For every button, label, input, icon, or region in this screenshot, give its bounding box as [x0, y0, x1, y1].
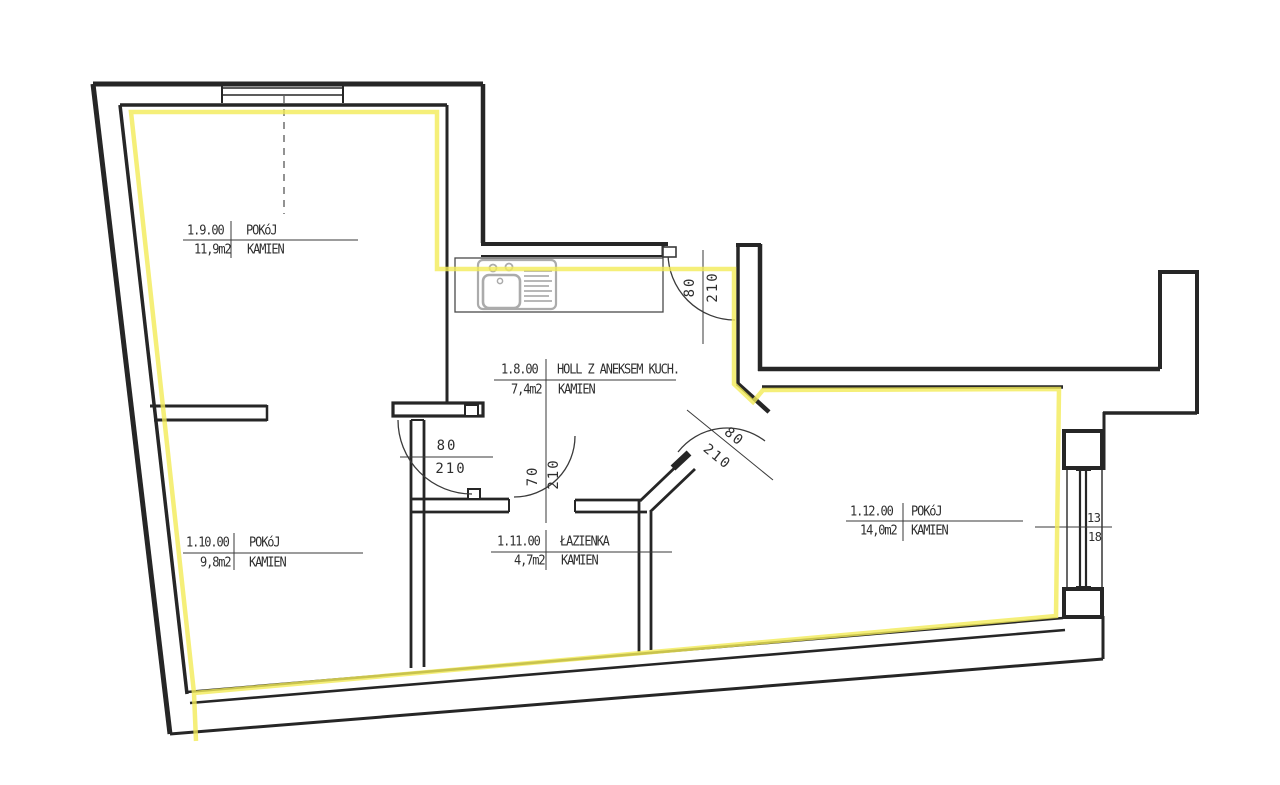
- entrance-door-arc: [668, 253, 735, 320]
- hall-area: 7,4m2: [511, 383, 541, 397]
- room-1-12-id: 1.12.00: [850, 505, 893, 519]
- room-1-12-material: KAMIEN: [911, 524, 948, 538]
- window-dim-top: 13: [1087, 512, 1100, 524]
- floorplan-page: 1.9.00 POKóJ 11,9m2 KAMIEN 1.10.00 POKóJ…: [0, 0, 1280, 785]
- hall-id: 1.8.00: [501, 363, 538, 377]
- room-1-10-door-height: 210: [435, 462, 466, 476]
- room-1-10-door-width: 80: [437, 439, 458, 453]
- window-dim-bottom: 18: [1088, 531, 1101, 543]
- right-window: [1067, 468, 1102, 588]
- room-1-9-material: KAMIEN: [247, 243, 284, 257]
- bathroom-area: 4,7m2: [514, 554, 544, 568]
- room-1-9-name: POKóJ: [246, 224, 276, 238]
- kitchen-sink: [455, 258, 663, 312]
- bathroom-door-height: 210: [547, 458, 561, 489]
- room-1-10-area: 9,8m2: [200, 556, 230, 570]
- floorplan-drawing: [0, 0, 1280, 785]
- bathroom-door-arc: [514, 436, 575, 497]
- entrance-door-width: 80: [683, 277, 697, 298]
- entrance-door-height: 210: [706, 271, 720, 302]
- highlight-perimeter: [131, 112, 1059, 741]
- bathroom-id: 1.11.00: [497, 535, 540, 549]
- bottom-wall: [187, 431, 1102, 703]
- entrance-door-hinge: [663, 247, 676, 257]
- room-1-12-name: POKóJ: [911, 505, 941, 519]
- room-1-10-material: KAMIEN: [249, 556, 286, 570]
- room-1-10-id: 1.10.00: [186, 536, 229, 550]
- room-1-9-id: 1.9.00: [187, 224, 224, 238]
- room-1-9-area: 11,9m2: [194, 243, 231, 257]
- room-1-12-door-arc: [678, 428, 765, 452]
- bathroom-name: ŁAZIENKA: [560, 535, 609, 549]
- bathroom-material: KAMIEN: [561, 554, 598, 568]
- bathroom-door-width: 70: [526, 466, 540, 487]
- dimension-lines: [183, 221, 1112, 570]
- hall-name: HOLL Z ANEKSEM KUCH.: [557, 363, 679, 377]
- room-1-12-area: 14,0m2: [860, 524, 897, 538]
- exterior-walls: [93, 84, 1197, 734]
- hall-material: KAMIEN: [558, 383, 595, 397]
- interior-walls: [150, 403, 695, 668]
- room-1-10-name: POKóJ: [249, 536, 279, 550]
- windows: [222, 86, 1102, 588]
